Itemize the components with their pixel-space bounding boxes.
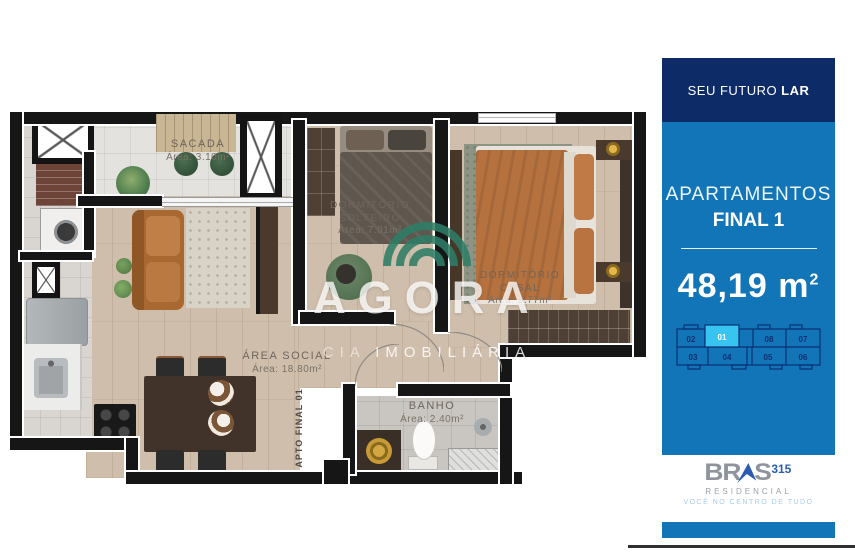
plate-notch [688, 365, 700, 369]
plant-small [114, 280, 132, 298]
bed-pillow [346, 130, 384, 150]
plant-small [116, 258, 132, 274]
door-arc [355, 344, 399, 386]
unit-07-label[interactable]: 07 [798, 335, 807, 344]
unit-01[interactable]: 01 [705, 325, 739, 347]
plate-notch [770, 365, 782, 369]
unit-04-label[interactable]: 04 [722, 353, 731, 362]
headboard [620, 142, 634, 308]
panel-subtitle: FINAL 1 [713, 210, 784, 232]
cowhide-stool [208, 380, 234, 406]
door-arc [448, 332, 502, 372]
room-name: DORMITÓRIO CASAL [462, 270, 578, 295]
room-name: DORMITÓRIO SOLTEIRO [322, 200, 418, 225]
wardrobe [508, 310, 630, 344]
tv-panel [450, 150, 462, 300]
wall [20, 252, 92, 260]
wall [10, 112, 22, 450]
shower-tray [448, 448, 502, 474]
floorplate-outline [677, 325, 820, 369]
unit-tag: APTO FINAL 01 [294, 388, 330, 468]
dining-table [144, 376, 256, 452]
gold-sink [366, 438, 392, 464]
sofa-back [132, 210, 144, 310]
flyer-page: SACADA Área: 3.10m² DORMITÓRIO SOLTEIRO … [0, 0, 855, 552]
lamp [606, 264, 620, 278]
logo-tagline: VOCÊ NO CENTRO DE TUDO [683, 499, 813, 506]
area-sup: 2 [809, 272, 819, 289]
header-text: SEU FUTURO [688, 83, 778, 98]
logo-division: RESIDENCIAL [705, 487, 791, 496]
plate-notch [800, 365, 812, 369]
lamp [606, 142, 620, 156]
tv-panel [256, 206, 278, 314]
room-area: Área: 2.40m² [382, 414, 482, 427]
plate-notch [732, 365, 746, 369]
divider [681, 248, 817, 249]
living-rug [186, 208, 250, 308]
desk-chair [336, 264, 356, 284]
developer-logo: BR S 315 RESIDENCIAL VOCÊ NO CENTRO DE T… [662, 455, 835, 512]
plate-notch [790, 325, 802, 329]
sliding-door [162, 197, 293, 207]
area-unit: m [778, 267, 809, 305]
sofa-cushion [146, 262, 180, 302]
room-label-casal: DORMITÓRIO CASAL Área: 9.77m² [462, 270, 578, 308]
kitchen-sink [34, 358, 68, 398]
room-label-banho: BANHO Área: 2.40m² [382, 400, 482, 426]
sofa-cushion [146, 216, 180, 256]
info-panel: SEU FUTURO LAR APARTAMENTOS FINAL 1 48,1… [662, 58, 835, 538]
door-arc-path [448, 332, 502, 372]
bed-pillow [574, 154, 594, 220]
page-edge-line [628, 545, 855, 548]
unit-05-label[interactable]: 05 [763, 353, 772, 362]
unit-02-label[interactable]: 02 [686, 335, 695, 344]
dining-chair [156, 450, 184, 474]
logo-text-right: S [755, 461, 772, 485]
area-value: 48,19 m2 [678, 267, 820, 306]
area-number: 48,19 [678, 267, 768, 305]
logo-number: 315 [771, 463, 791, 475]
wall [500, 345, 646, 357]
door-arc-path [355, 344, 399, 386]
logo-brand-row: BR S 315 [706, 461, 792, 485]
panel-header: SEU FUTURO LAR [662, 58, 835, 122]
plant [116, 166, 150, 200]
room-name: ÁREA SOCIAL [222, 350, 352, 364]
room-name: SACADA [138, 138, 258, 152]
unit-06-label[interactable]: 06 [798, 353, 807, 362]
sofa [132, 210, 184, 310]
room-label-solteiro: DORMITÓRIO SOLTEIRO Área: 7.01m² [322, 200, 418, 238]
fridge [26, 298, 88, 346]
dining-chair [198, 450, 226, 474]
window [478, 113, 556, 123]
floorplate-diagram: 01 02 08 07 03 04 05 06 [674, 322, 824, 372]
unit-03-label[interactable]: 03 [688, 353, 697, 362]
floorplan: SACADA Área: 3.10m² DORMITÓRIO SOLTEIRO … [10, 112, 646, 486]
wall [10, 438, 138, 450]
room-area: Área: 7.01m² [322, 225, 418, 238]
wall [293, 120, 305, 324]
plate-notch [684, 325, 698, 329]
room-area: Área: 18.80m² [222, 364, 352, 377]
unit-08-label[interactable]: 08 [764, 335, 773, 344]
panel-title: APARTAMENTOS [666, 184, 832, 206]
wall [398, 384, 510, 396]
vent-shaft-small-icon [32, 262, 60, 298]
panel-body: APARTAMENTOS FINAL 1 48,19 m2 [662, 122, 835, 455]
wall [435, 120, 448, 332]
room-label-social: ÁREA SOCIAL Área: 18.80m² [222, 350, 352, 376]
cowhide-stool [208, 410, 234, 436]
cooktop [94, 404, 136, 442]
room-area: Área: 3.10m² [138, 152, 258, 165]
bed-pillow [388, 130, 426, 150]
wall [300, 312, 394, 324]
room-name: BANHO [382, 400, 482, 414]
logo-text-left: BR [704, 461, 740, 485]
plate-notch [758, 325, 770, 329]
room-area: Área: 9.77m² [462, 295, 578, 308]
unit-01-label[interactable]: 01 [717, 333, 726, 342]
room-label-sacada: SACADA Área: 3.10m² [138, 138, 258, 164]
wall [634, 112, 646, 357]
panel-footer-bar [662, 522, 835, 538]
wall [78, 196, 162, 206]
header-text-bold: LAR [781, 83, 809, 98]
